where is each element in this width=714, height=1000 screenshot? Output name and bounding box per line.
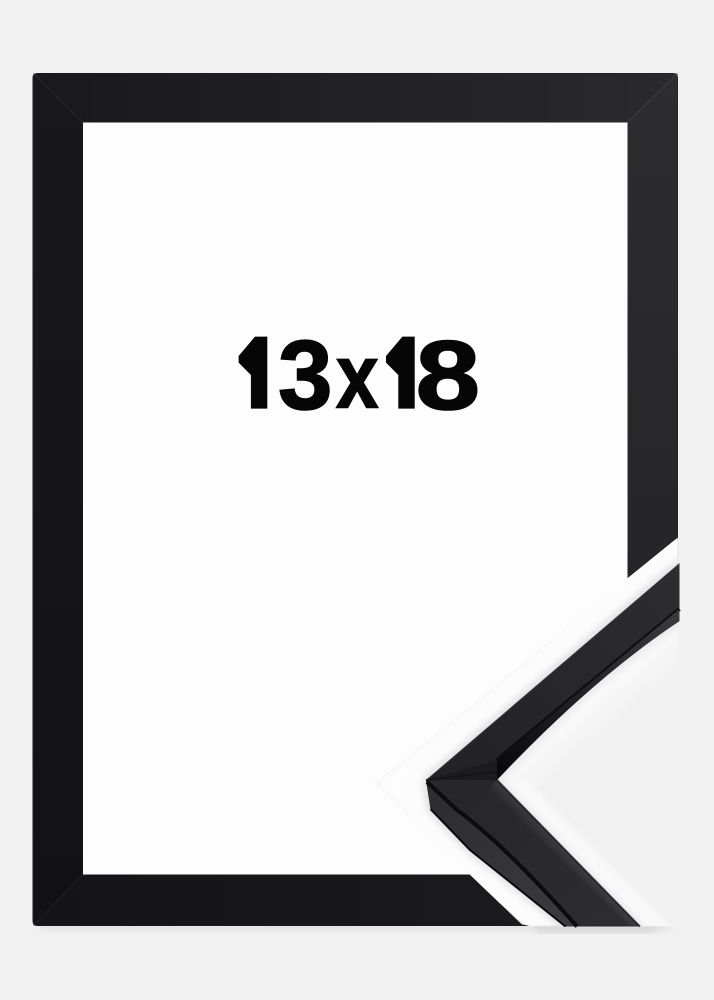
svg-text:8: 8 <box>416 320 481 430</box>
svg-text:x: x <box>336 327 379 428</box>
svg-text:3: 3 <box>278 320 333 430</box>
